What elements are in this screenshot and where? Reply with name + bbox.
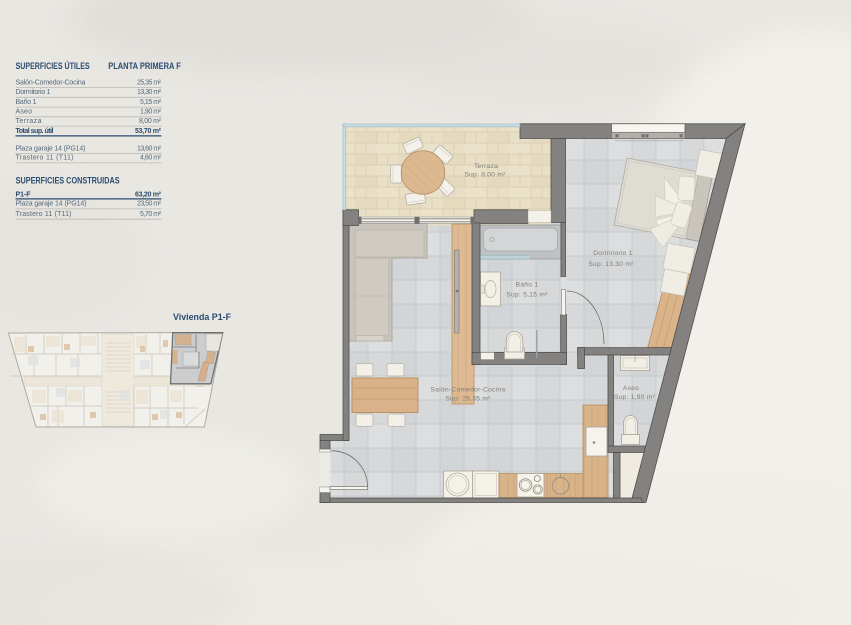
svg-text:Plaza garaje 14 (PG14): Plaza garaje 14 (PG14): [16, 201, 87, 208]
svg-text:13,30 m²: 13,30 m²: [137, 89, 162, 96]
svg-text:PLANTA PRIMERA F: PLANTA PRIMERA F: [108, 61, 181, 71]
svg-text:Aseo: Aseo: [16, 109, 33, 116]
svg-text:8,00 m²: 8,00 m²: [139, 118, 162, 125]
svg-text:Sup: 13,30 m²: Sup: 13,30 m²: [588, 261, 634, 268]
svg-text:Plaza garaje 14 (PG14): Plaza garaje 14 (PG14): [16, 146, 86, 153]
svg-text:SUPERFICIES CONSTRUIDAS: SUPERFICIES CONSTRUIDAS: [16, 176, 120, 186]
svg-text:63,20 m²: 63,20 m²: [135, 192, 162, 199]
svg-text:Dormitorio 1: Dormitorio 1: [16, 89, 51, 96]
svg-text:Terraza: Terraza: [16, 118, 42, 125]
svg-text:5,70 m²: 5,70 m²: [140, 211, 162, 218]
svg-text:Salón-Comedor-Cocina: Salón-Comedor-Cocina: [431, 387, 506, 394]
svg-text:13,60 m²: 13,60 m²: [137, 146, 162, 153]
svg-text:Terraza: Terraza: [474, 163, 498, 170]
svg-text:Trastero 11 (T11): Trastero 11 (T11): [16, 211, 72, 218]
svg-text:Aseo: Aseo: [623, 385, 639, 392]
svg-text:Trastero 11 (T11): Trastero 11 (T11): [16, 154, 74, 161]
svg-text:SUPERFICIES ÚTILES: SUPERFICIES ÚTILES: [16, 60, 90, 71]
svg-text:Total sup. útil: Total sup. útil: [16, 128, 54, 135]
svg-text:Sup: 1,90 m²: Sup: 1,90 m²: [614, 394, 656, 401]
svg-text:Sup: 25,35 m²: Sup: 25,35 m²: [445, 396, 491, 403]
svg-text:23,50 m²: 23,50 m²: [137, 201, 162, 208]
svg-text:Salón-Comedor-Cocina: Salón-Comedor-Cocina: [16, 79, 86, 86]
svg-text:Baño 1: Baño 1: [516, 282, 539, 289]
svg-text:Dormitorio 1: Dormitorio 1: [593, 250, 633, 257]
svg-text:Baño 1: Baño 1: [16, 99, 37, 106]
svg-text:1,90 m²: 1,90 m²: [140, 109, 162, 116]
svg-text:Sup: 5,15 m²: Sup: 5,15 m²: [506, 292, 548, 299]
svg-text:P1-F: P1-F: [16, 192, 32, 199]
svg-text:4,60 m²: 4,60 m²: [140, 154, 162, 161]
svg-text:Vivienda P1-F: Vivienda P1-F: [173, 311, 231, 322]
svg-text:53,70 m²: 53,70 m²: [135, 128, 162, 135]
svg-text:5,15 m²: 5,15 m²: [140, 99, 162, 106]
svg-text:Sup: 8,00 m²: Sup: 8,00 m²: [464, 172, 506, 179]
svg-text:25,35 m²: 25,35 m²: [137, 79, 162, 86]
